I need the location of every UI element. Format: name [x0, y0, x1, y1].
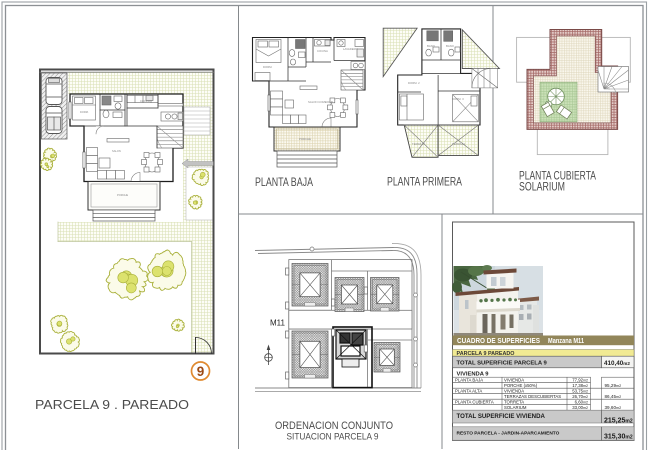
svg-text:SOLARIUM: SOLARIUM — [519, 182, 565, 194]
svg-text:M11: M11 — [270, 319, 286, 328]
svg-text:PLANTA BAJA: PLANTA BAJA — [255, 177, 313, 189]
svg-text:SALON: SALON — [112, 149, 121, 153]
svg-text:CUADRO DE SUPERFICIES: CUADRO DE SUPERFICIES — [457, 338, 540, 345]
svg-text:TERRAZAS DESCUBIERTAS: TERRAZAS DESCUBIERTAS — [504, 394, 561, 399]
svg-text:TORRETA: TORRETA — [504, 400, 524, 405]
svg-text:SOLARIUM: SOLARIUM — [504, 405, 527, 410]
svg-text:TOTAL SUPERFICIE VIVIENDA: TOTAL SUPERFICIE VIVIENDA — [457, 413, 546, 420]
svg-text:PLANTA CUBIERTA: PLANTA CUBIERTA — [455, 400, 494, 405]
svg-text:VIVIENDA: VIVIENDA — [504, 389, 524, 394]
svg-text:9: 9 — [197, 364, 205, 379]
svg-text:BANO: BANO — [427, 44, 436, 48]
svg-text:RESTO PARCELA - JARDIN-APARC: RESTO PARCELA - JARDIN-APARCAMIENTO — [457, 430, 560, 436]
svg-text:53,75m2: 53,75m2 — [572, 389, 588, 394]
svg-text:DORM. 3: DORM. 3 — [452, 97, 464, 101]
svg-text:33,00m2: 33,00m2 — [572, 405, 588, 410]
svg-text:ORDENACION CONJUNTO: ORDENACION CONJUNTO — [275, 420, 393, 432]
svg-text:COCINA: COCINA — [317, 49, 328, 53]
svg-text:315,30m2: 315,30m2 — [604, 434, 633, 441]
svg-text:PLANTA PRIMERA: PLANTA PRIMERA — [387, 177, 462, 189]
svg-text:26,70m2: 26,70m2 — [572, 394, 588, 399]
svg-text:VIVIENDA: VIVIENDA — [504, 378, 524, 383]
svg-text:215,25m2: 215,25m2 — [604, 417, 633, 424]
svg-text:PLANTA BAJA: PLANTA BAJA — [455, 378, 483, 383]
svg-text:TERRAZA: TERRAZA — [452, 142, 465, 146]
svg-text:39,60m2: 39,60m2 — [605, 405, 622, 410]
svg-text:PORCHE (x50%): PORCHE (x50%) — [504, 383, 538, 388]
svg-text:TERRAZA: TERRAZA — [412, 142, 425, 146]
svg-text:86,45m2: 86,45m2 — [605, 394, 622, 399]
svg-text:17,38m2: 17,38m2 — [572, 383, 588, 388]
svg-text:LAVADERO: LAVADERO — [343, 47, 359, 51]
svg-text:BANO: BANO — [446, 44, 455, 48]
svg-text:COCINA: COCINA — [140, 99, 150, 103]
svg-text:95,29m2: 95,29m2 — [605, 383, 622, 388]
svg-text:6,60m2: 6,60m2 — [575, 400, 588, 405]
svg-text:Manzana M11: Manzana M11 — [548, 338, 584, 345]
svg-text:SITUACION PARCELA 9: SITUACION PARCELA 9 — [287, 432, 379, 443]
svg-text:TOTAL SUPERFICIE PARCELA 9: TOTAL SUPERFICIE PARCELA 9 — [457, 361, 548, 367]
svg-text:PARCELA 9 . PAREADO: PARCELA 9 . PAREADO — [35, 397, 189, 412]
svg-text:DORM.: DORM. — [263, 65, 273, 69]
svg-text:PORCHE: PORCHE — [117, 193, 128, 197]
svg-text:77,92m2: 77,92m2 — [572, 378, 588, 383]
svg-text:PLANTA ALTA: PLANTA ALTA — [455, 389, 482, 394]
svg-text:410,40m2: 410,40m2 — [604, 360, 630, 367]
svg-text:SALON COMEDOR: SALON COMEDOR — [308, 100, 333, 104]
svg-text:DORM. 2: DORM. 2 — [408, 81, 420, 85]
svg-text:PORCHE: PORCHE — [299, 137, 311, 141]
svg-text:DORM.: DORM. — [80, 110, 89, 114]
